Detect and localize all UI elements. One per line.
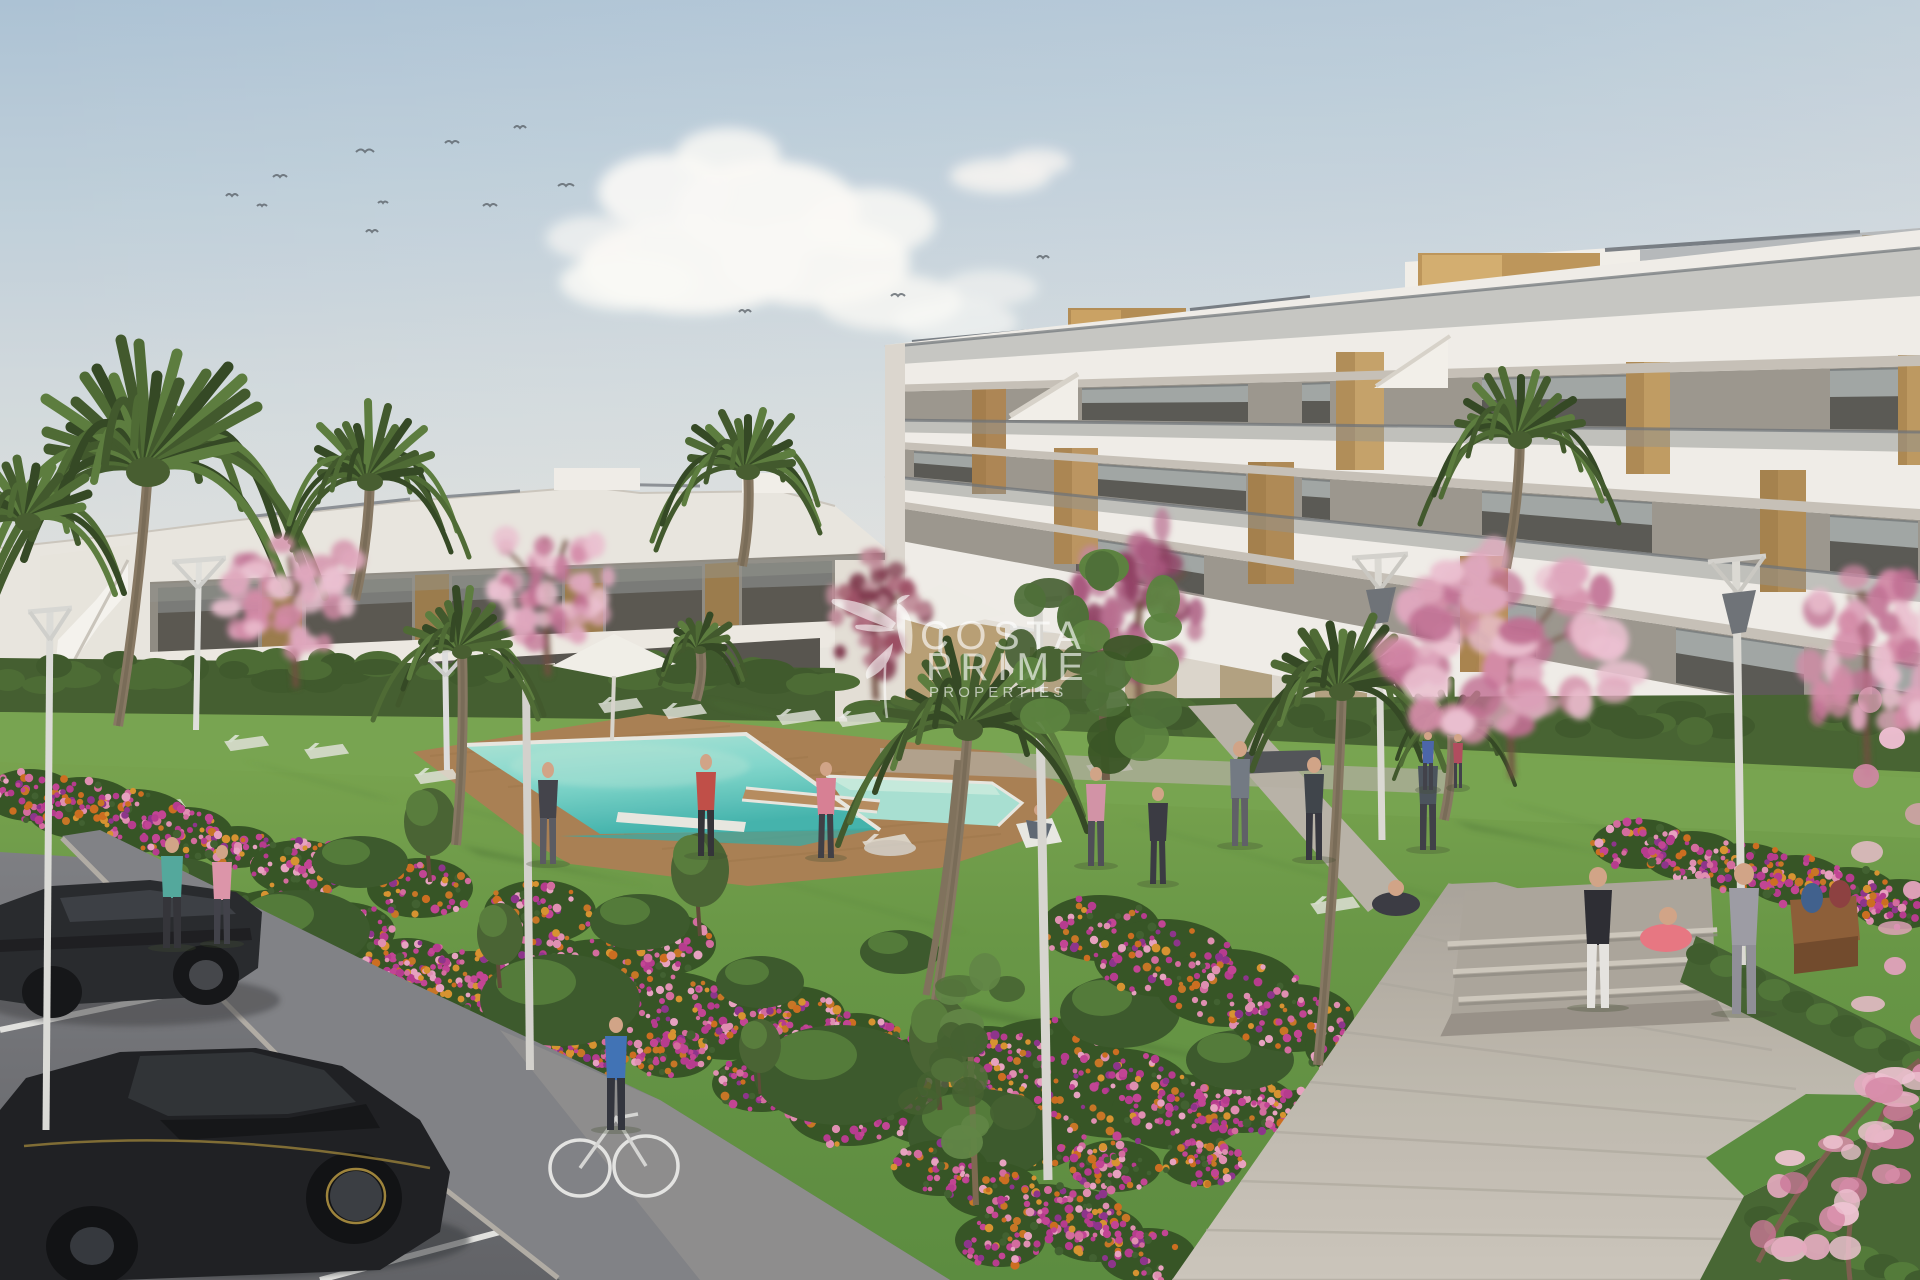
svg-text:PRIME: PRIME bbox=[926, 646, 1092, 689]
svg-text:PROPERTIES: PROPERTIES bbox=[929, 684, 1067, 701]
